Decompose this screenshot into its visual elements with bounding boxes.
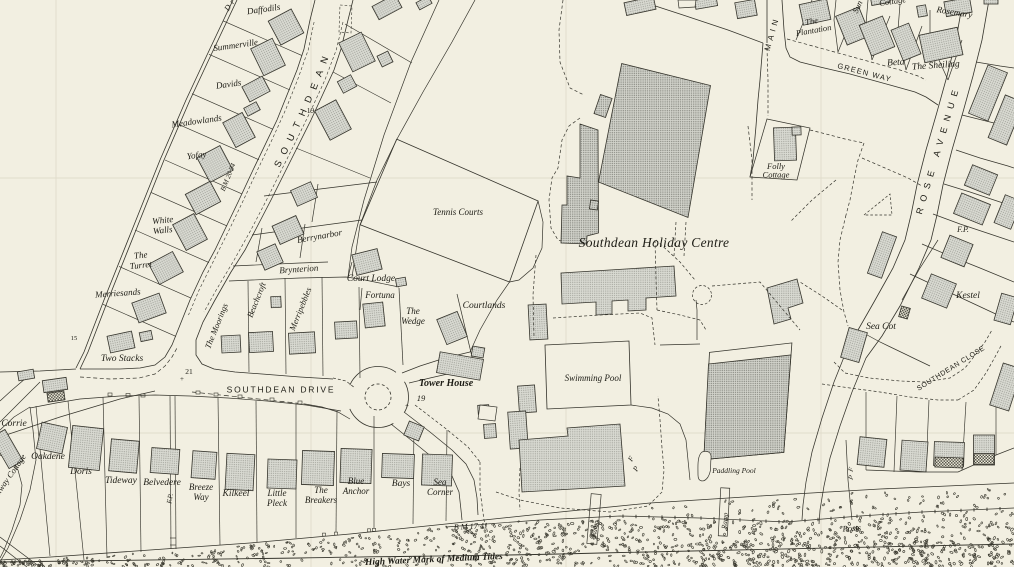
svg-text:Oakdene: Oakdene (31, 452, 65, 462)
svg-text:Doris: Doris (69, 467, 92, 477)
svg-text:Breeze: Breeze (189, 482, 213, 492)
svg-text:Wedge: Wedge (401, 316, 425, 326)
svg-text:Bays: Bays (392, 479, 411, 489)
svg-text:Blue: Blue (348, 476, 365, 486)
svg-text:Court Lodge: Court Lodge (347, 274, 395, 284)
svg-text:21: 21 (185, 367, 193, 376)
svg-text:F.P.: F.P. (956, 225, 969, 234)
svg-text:15: 15 (71, 335, 78, 342)
svg-text:Corrie: Corrie (1, 419, 26, 429)
svg-text:Sea: Sea (434, 477, 447, 487)
svg-text:Tideway: Tideway (105, 476, 137, 486)
svg-text:+: + (180, 375, 184, 383)
svg-text:Courtlands: Courtlands (463, 301, 506, 311)
svg-text:Fortuna: Fortuna (364, 290, 395, 300)
svg-text:+: + (405, 402, 409, 410)
svg-text:The: The (314, 485, 328, 495)
svg-text:Belvedere: Belvedere (143, 478, 181, 488)
svg-text:Little: Little (266, 488, 286, 498)
svg-text:Way: Way (193, 492, 208, 502)
svg-text:SOUTHDEAN DRIVE: SOUTHDEAN DRIVE (227, 385, 336, 395)
svg-text:19: 19 (417, 393, 426, 403)
svg-text:Two Stacks: Two Stacks (101, 354, 144, 364)
svg-text:Paddling Pool: Paddling Pool (711, 466, 756, 475)
svg-text:The: The (406, 306, 420, 316)
svg-text:19: 19 (307, 106, 315, 115)
svg-text:Kestel: Kestel (955, 291, 980, 301)
svg-text:Breakers: Breakers (305, 495, 338, 505)
svg-text:Anchor: Anchor (342, 486, 370, 496)
svg-text:Sea Cot: Sea Cot (866, 322, 896, 332)
svg-text:Tennis Courts: Tennis Courts (433, 207, 483, 217)
svg-text:Swimming Pool: Swimming Pool (565, 373, 622, 383)
svg-text:Tower House: Tower House (419, 378, 474, 389)
svg-text:B M 17·41: B M 17·41 (453, 521, 488, 532)
svg-text:Beta: Beta (887, 57, 905, 68)
svg-text:Southdean Holiday Centre: Southdean Holiday Centre (579, 235, 730, 250)
svg-text:Pleck: Pleck (266, 498, 288, 508)
svg-text:Walls: Walls (152, 224, 173, 236)
svg-text:Kilkeel: Kilkeel (222, 489, 250, 499)
svg-text:Posts: Posts (841, 522, 862, 533)
svg-text:Cottage: Cottage (763, 170, 790, 180)
svg-text:Corner: Corner (427, 487, 454, 497)
